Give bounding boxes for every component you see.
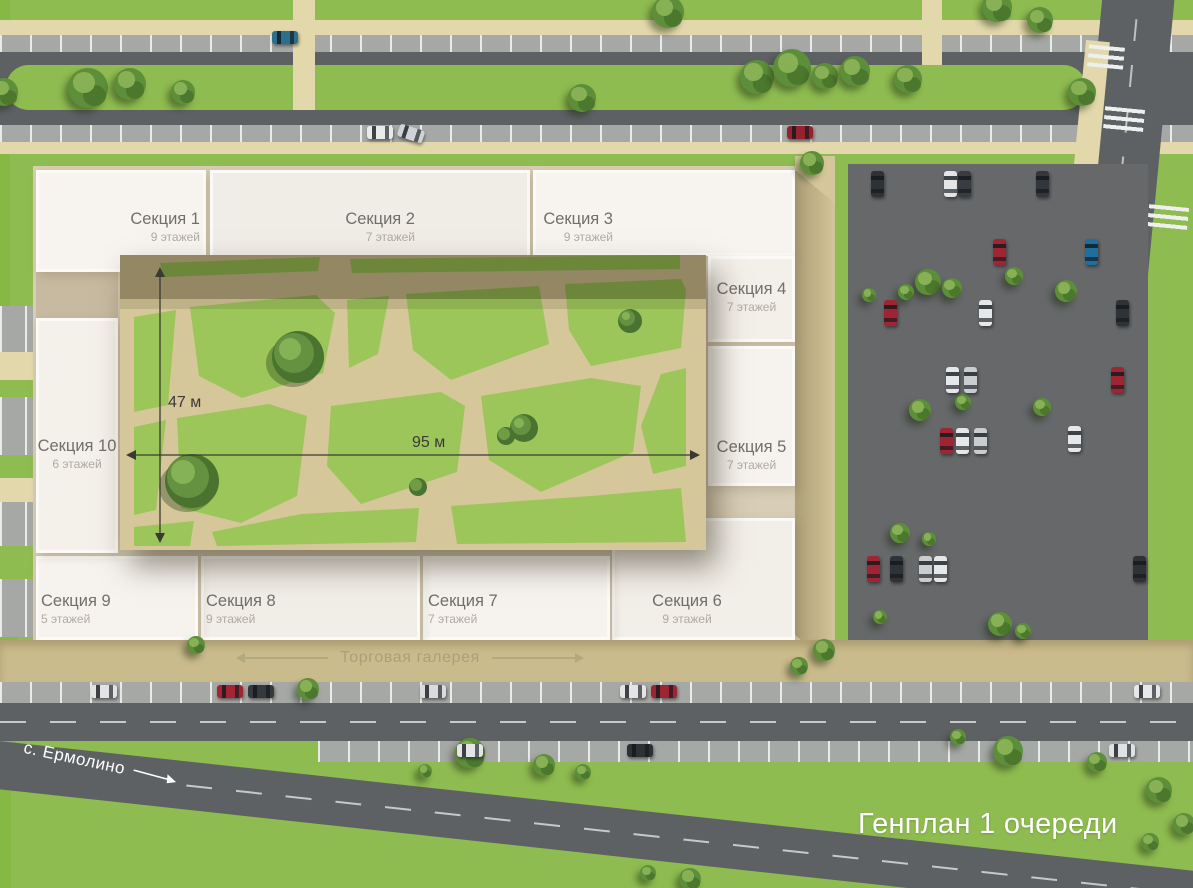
car <box>871 171 884 197</box>
tree <box>679 868 701 888</box>
car <box>993 239 1006 265</box>
section-name: Секция 8 <box>206 592 316 611</box>
tree <box>1146 777 1172 803</box>
tree <box>114 68 146 100</box>
tree <box>813 639 835 661</box>
tree <box>773 49 811 87</box>
car <box>979 300 992 326</box>
gallery-label: Торговая галерея <box>340 649 480 667</box>
tree <box>533 754 555 776</box>
tree <box>993 736 1023 766</box>
tree <box>1015 623 1031 639</box>
dimension-height-label: 47 м <box>168 394 201 411</box>
car <box>620 685 646 698</box>
street-green-gap <box>0 255 10 272</box>
tree <box>955 394 971 410</box>
car <box>958 171 971 197</box>
car <box>956 428 969 454</box>
section-label-7: Секция 77 этажей <box>428 592 528 627</box>
section-label-10: Секция 106 этажей <box>36 437 118 472</box>
section-name: Секция 5 <box>708 438 795 457</box>
car <box>940 428 953 454</box>
promenade <box>0 640 1193 682</box>
section-floors: 9 этажей <box>612 613 762 627</box>
section-name: Секция 1 <box>100 210 200 229</box>
courtyard-inset: 47 м 95 м <box>120 255 706 550</box>
tree <box>187 636 205 654</box>
tree <box>640 865 656 881</box>
top-parking-row-1 <box>0 35 1193 52</box>
tree <box>800 151 824 175</box>
tree <box>894 65 922 93</box>
tree <box>922 532 936 546</box>
median-strip <box>6 65 1086 110</box>
car <box>1109 744 1135 757</box>
crosswalk <box>1147 204 1189 232</box>
car <box>974 428 987 454</box>
street-green-gap <box>0 170 10 187</box>
car <box>272 31 298 44</box>
car <box>457 744 483 757</box>
dimension-width-label: 95 м <box>412 434 445 451</box>
tree <box>1141 833 1159 851</box>
top-sidewalk-2 <box>0 142 1193 154</box>
section-name: Секция 3 <box>513 210 613 229</box>
tree <box>812 63 838 89</box>
tree <box>740 60 774 94</box>
car <box>651 685 677 698</box>
tree <box>575 764 591 780</box>
section-floors: 7 этажей <box>428 613 528 627</box>
street-green-gap <box>0 879 11 888</box>
section-name: Секция 10 <box>36 437 118 456</box>
gallery-arrow-left-icon <box>240 657 328 659</box>
section-label-8: Секция 89 этажей <box>206 592 316 627</box>
tree <box>988 612 1012 636</box>
tree <box>890 523 910 543</box>
tree <box>1068 78 1096 106</box>
car <box>1036 171 1049 197</box>
tree <box>840 56 870 86</box>
tree <box>418 764 432 778</box>
tree <box>1027 7 1053 33</box>
building-inner-shadow <box>36 272 118 318</box>
street-green-gap <box>0 204 10 221</box>
tree <box>297 678 319 700</box>
tree <box>950 729 966 745</box>
section-floors: 9 этажей <box>100 231 200 245</box>
street-green-gap <box>0 221 10 238</box>
car <box>1134 685 1160 698</box>
car <box>1085 239 1098 265</box>
car <box>964 367 977 393</box>
section-name: Секция 4 <box>708 280 795 299</box>
car <box>248 685 274 698</box>
car <box>1133 556 1146 582</box>
section-label-3: Секция 39 этажей <box>513 210 613 245</box>
car <box>946 367 959 393</box>
tree <box>568 84 596 112</box>
section-floors: 9 этажей <box>513 231 613 245</box>
tree <box>171 80 195 104</box>
left-path <box>0 478 36 502</box>
gallery-arrow-right-icon <box>492 657 580 659</box>
car <box>1068 426 1081 452</box>
section-name: Секция 9 <box>41 592 141 611</box>
path-crossing-2 <box>922 0 942 65</box>
street-green-gap <box>0 0 10 17</box>
street-green-gap <box>0 858 11 879</box>
section-label-1: Секция 19 этажей <box>100 210 200 245</box>
car <box>420 685 446 698</box>
genplan-canvas: Секция 19 этажейСекция 27 этажейСекция 3… <box>0 0 1193 888</box>
section-floors: 6 этажей <box>36 458 118 472</box>
bottom-road-centerline <box>0 721 1193 723</box>
street-green-gap <box>0 187 10 204</box>
tree <box>1033 398 1051 416</box>
section-floors: 5 этажей <box>41 613 141 627</box>
section-label-5: Секция 57 этажей <box>708 438 795 473</box>
section-floors: 7 этажей <box>305 231 415 245</box>
section-floors: 7 этажей <box>708 301 795 315</box>
tree <box>1055 280 1077 302</box>
section-name: Секция 7 <box>428 592 528 611</box>
tree <box>790 657 808 675</box>
tree <box>909 399 931 421</box>
tree <box>942 278 962 298</box>
section-floors: 7 этажей <box>708 459 795 473</box>
building-shadow <box>795 170 837 670</box>
street-green-gap <box>0 153 10 170</box>
car <box>367 126 393 139</box>
car <box>890 556 903 582</box>
tree <box>1087 752 1107 772</box>
bottom-parking-row-2 <box>318 741 1193 762</box>
tree <box>873 610 887 624</box>
car <box>884 300 897 326</box>
car <box>91 685 117 698</box>
car <box>787 126 813 139</box>
top-parking-row-2 <box>0 125 1193 142</box>
tree <box>652 0 684 28</box>
tree <box>915 269 941 295</box>
street-green-gap <box>0 272 10 289</box>
section-card-10[interactable] <box>36 318 118 553</box>
car <box>934 556 947 582</box>
tree <box>898 284 914 300</box>
top-sidewalk <box>0 20 1193 35</box>
tree <box>1173 813 1193 835</box>
left-path <box>0 352 36 380</box>
car <box>919 556 932 582</box>
bottom-road <box>0 703 1193 741</box>
street-green-gap <box>0 289 10 306</box>
gallery-label-group: Торговая галерея <box>225 645 595 671</box>
courtyard-top-shadow <box>120 255 706 299</box>
tree <box>1005 267 1023 285</box>
section-label-4: Секция 47 этажей <box>708 280 795 315</box>
car <box>944 171 957 197</box>
street-green-gap <box>0 238 10 255</box>
crosswalk <box>1103 106 1145 134</box>
section-floors: 9 этажей <box>206 613 316 627</box>
car <box>1116 300 1129 326</box>
car <box>217 685 243 698</box>
crosswalk <box>1087 44 1125 69</box>
arrowhead-left-icon <box>126 450 136 460</box>
car <box>1111 367 1124 393</box>
section-label-6: Секция 69 этажей <box>612 592 762 627</box>
car <box>867 556 880 582</box>
section-name: Секция 2 <box>305 210 415 229</box>
section-label-9: Секция 95 этажей <box>41 592 141 627</box>
street-green-gap <box>0 837 11 858</box>
street-green-gap <box>0 795 11 816</box>
tree <box>68 68 108 108</box>
section-label-2: Секция 27 этажей <box>305 210 415 245</box>
car <box>627 744 653 757</box>
tree <box>862 288 876 302</box>
street-green-gap <box>0 816 11 837</box>
arrowhead-right-icon <box>690 450 700 460</box>
courtyard-plan: 47 м 95 м <box>120 255 706 550</box>
bottom-parking-row-1 <box>0 682 1193 703</box>
section-name: Секция 6 <box>612 592 762 611</box>
plan-title: Генплан 1 очереди <box>858 808 1118 841</box>
path-crossing-1 <box>293 0 315 110</box>
